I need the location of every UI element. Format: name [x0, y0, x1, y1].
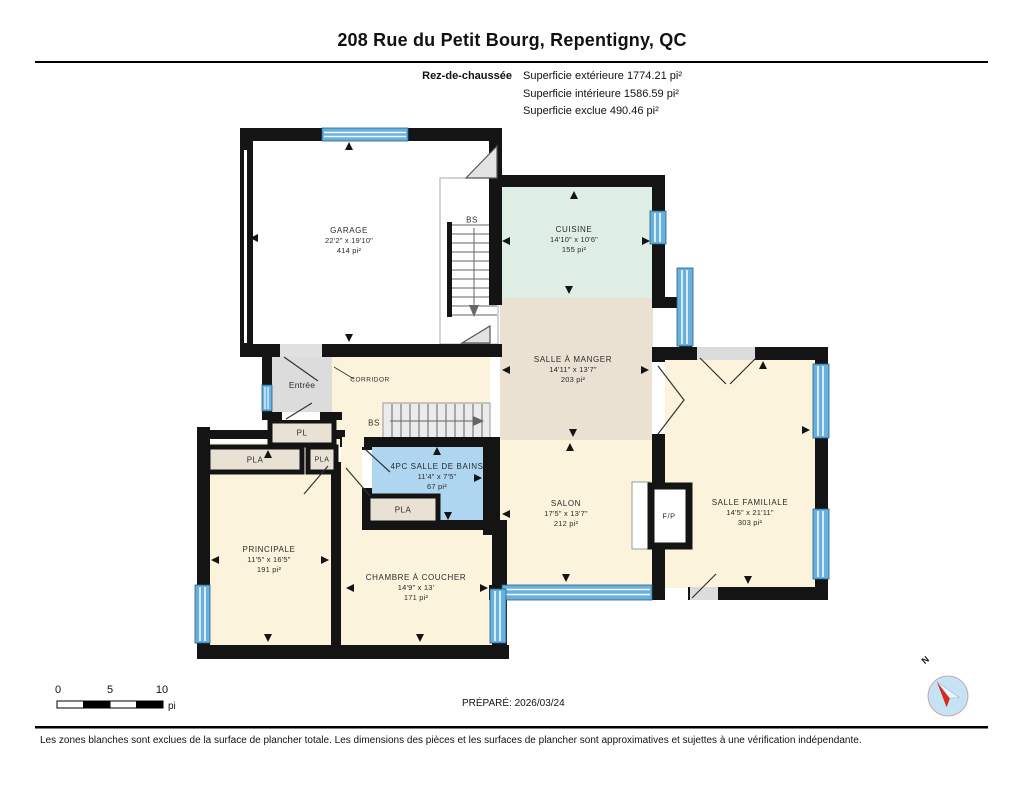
compass-icon — [928, 676, 968, 716]
room-label-salle-de-bains: 4PC SALLE DE BAINS 11'4" x 7'5" 67 pi² — [390, 462, 483, 492]
floor-plan-page: 208 Rue du Petit Bourg, Repentigny, QC R… — [0, 0, 1024, 791]
room-label-salle-a-manger: SALLE À MANGER 14'11" x 13'7" 203 pi² — [534, 355, 612, 385]
label-corridor: CORRIDOR — [350, 377, 389, 384]
label-pla-hall: PLA — [315, 457, 330, 464]
scale-unit: pi — [168, 701, 176, 712]
room-label-chambre: CHAMBRE À COUCHER 14'9" x 13' 171 pi² — [366, 573, 466, 603]
floor-plan-drawing — [0, 0, 1024, 791]
room-label-salon: SALON 17'5" x 13'7" 212 pi² — [544, 499, 588, 529]
label-pl: PL — [297, 429, 308, 438]
room-label-salle-familiale: SALLE FAMILIALE 14'5" x 21'11" 303 pi² — [712, 498, 789, 528]
fireplace — [632, 482, 689, 549]
scale-tick-5: 5 — [107, 684, 113, 696]
label-pla-left: PLA — [247, 456, 264, 465]
label-pla-bath: PLA — [395, 506, 412, 515]
scale-tick-0: 0 — [55, 684, 61, 696]
room-label-cuisine: CUISINE 14'10" x 10'6" 155 pi² — [550, 225, 598, 255]
label-fireplace: F/P — [662, 512, 675, 521]
scale-bar — [57, 701, 163, 708]
label-entree: Entrée — [289, 380, 315, 390]
disclaimer-text: Les zones blanches sont exclues de la su… — [40, 735, 862, 746]
room-label-garage: GARAGE 22'2" x 19'10" 414 pi² — [325, 226, 373, 256]
footer-divider — [35, 726, 988, 729]
room-label-principale: PRINCIPALE 11'5" x 16'5" 191 pi² — [243, 545, 296, 575]
prepared-date: PRÉPARÉ: 2026/03/24 — [462, 698, 565, 709]
label-bs-garage: BS — [466, 216, 478, 225]
label-bs-hall: BS — [368, 419, 380, 428]
scale-tick-10: 10 — [156, 684, 168, 696]
